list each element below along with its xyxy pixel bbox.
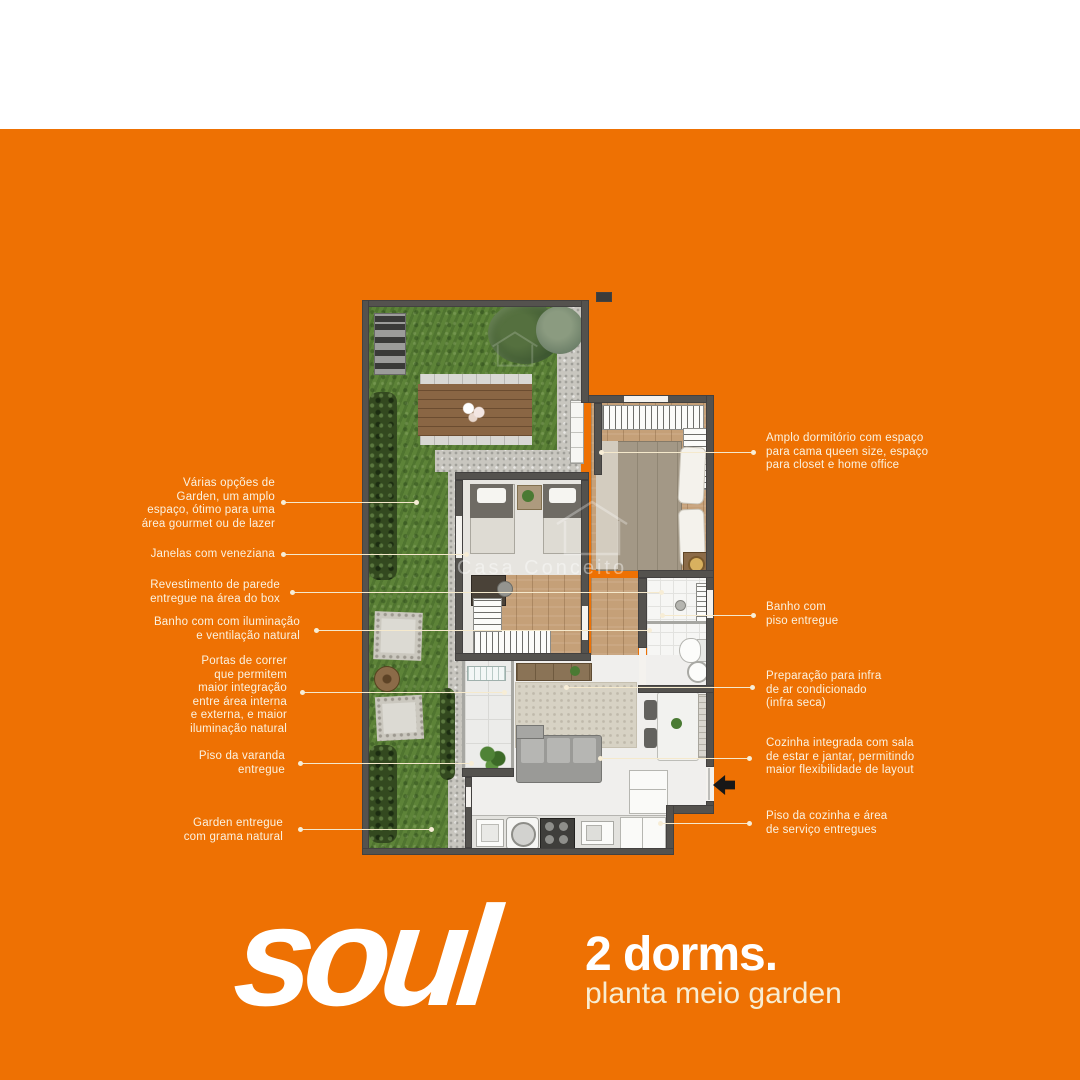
tree-light — [536, 306, 584, 354]
wall-bedroom2-bottom — [455, 653, 591, 661]
hall-floor — [591, 578, 638, 655]
wall-right-upper — [706, 395, 714, 767]
chimney-block — [596, 292, 612, 302]
logo-headline: 2 dorms. — [585, 931, 777, 979]
entrance-door-leaf — [708, 768, 710, 800]
leader-line — [283, 554, 467, 555]
wall-left — [362, 300, 369, 855]
varanda-garden-sliding-door — [462, 661, 465, 768]
dining-chair-1 — [644, 700, 657, 720]
label-janelas-veneziana: Janelas com veneziana — [35, 548, 275, 562]
sofa-cushion-3 — [573, 738, 596, 763]
leader-line — [300, 829, 432, 830]
service-door-gap — [466, 787, 471, 807]
wall-bathroom-left — [638, 578, 647, 648]
toilet-bowl — [679, 638, 701, 663]
bbq-grill — [374, 313, 406, 375]
garden-bench-top — [420, 374, 532, 384]
table-flowers — [458, 398, 488, 424]
bed-main-pillow-1 — [678, 446, 707, 504]
label-garden-grama: Garden entregue com grama natural — [43, 817, 283, 844]
wall-garden-top — [362, 300, 589, 307]
stove-burner-3 — [545, 835, 554, 844]
house-outline-icon — [556, 500, 628, 556]
nightstand-plant — [522, 490, 534, 502]
stone-deck-2 — [375, 695, 424, 741]
stove-burner-4 — [559, 835, 568, 844]
dining-chair-2 — [644, 728, 657, 748]
laundry-sink-basin — [481, 824, 499, 842]
wardrobe-bottom — [473, 630, 551, 655]
sofa-cushion-2 — [547, 738, 570, 763]
leader-line — [302, 692, 505, 693]
shrub-row-upper — [369, 392, 397, 580]
bed2-a-pillow — [477, 488, 506, 503]
garden-bench-bottom — [420, 436, 532, 445]
label-portas-de-correr: Portas de correr que permitem maior inte… — [47, 655, 287, 737]
leader-line — [660, 823, 750, 824]
washer-drum — [511, 822, 536, 847]
leader-line — [283, 502, 417, 503]
shower-drain — [675, 600, 686, 611]
leader-line — [316, 630, 650, 631]
label-revestimento-box: Revestimento de parede entregue na área … — [40, 579, 280, 606]
bathroom-window-gap — [707, 590, 713, 618]
house-outline-icon-small — [492, 330, 538, 368]
stone-deck-1 — [373, 611, 423, 661]
bedroom-garden-window — [570, 400, 584, 464]
poster-canvas: Casa Conceito Várias opções de Garden, u… — [0, 0, 1080, 1080]
logo-subline: planta meio garden — [585, 979, 842, 1009]
label-piso-cozinha: Piso da cozinha e área de serviço entreg… — [766, 810, 1006, 837]
gravel-path-band — [435, 450, 581, 472]
wall-varanda-bottom — [462, 768, 514, 777]
label-piso-varanda: Piso da varanda entregue — [45, 750, 285, 777]
label-garden-options: Várias opções de Garden, um amplo espaço… — [35, 477, 275, 531]
leader-line — [601, 452, 754, 453]
bedroom2-varanda-window — [467, 666, 506, 681]
leader-line — [662, 615, 754, 616]
dining-plant — [671, 718, 682, 729]
desk-chair — [497, 581, 513, 597]
fridge — [629, 770, 668, 814]
sofa-cushion-1 — [521, 738, 544, 763]
leader-line — [600, 758, 750, 759]
label-infra-ar: Preparação para infra de ar condicionado… — [766, 670, 1006, 711]
leader-line — [300, 763, 472, 764]
brand-logo: soul — [229, 886, 496, 1028]
bedroom2-door-gap — [582, 606, 588, 640]
kitchen-sink-basin — [586, 825, 602, 841]
label-banho-iluminacao: Banho com com iluminação e ventilação na… — [60, 616, 300, 643]
wall-bedroom2-top — [455, 472, 589, 480]
tv-rack — [516, 663, 592, 681]
bedroom2-window-gap — [456, 516, 462, 558]
label-banho-piso: Banho com piso entregue — [766, 601, 1006, 628]
wall-bedroom-left — [594, 403, 602, 475]
shrub-row-mid — [440, 688, 455, 780]
wardrobe-side — [473, 598, 502, 632]
bedroom-top-window-gap — [624, 396, 668, 402]
wall-garden-right — [581, 300, 589, 403]
varanda-living-sliding-door — [511, 661, 514, 768]
fridge-divider — [629, 789, 666, 790]
stove-burner-2 — [559, 822, 568, 831]
label-amplo-dormitorio: Amplo dormitório com espaço para cama qu… — [766, 432, 1006, 473]
parasol-table — [374, 666, 400, 692]
label-cozinha-integrada: Cozinha integrada com sala de estar e ja… — [766, 737, 1006, 778]
watermark-text: Casa Conceito — [432, 557, 652, 580]
leader-line — [292, 592, 662, 593]
closet-top — [602, 405, 704, 430]
wall-bottom — [362, 848, 674, 855]
tv-rack-plant — [570, 666, 580, 676]
bathroom-door-gap — [639, 648, 646, 685]
stove-burner-1 — [545, 822, 554, 831]
shower-glass-divider — [647, 621, 706, 624]
leader-line — [566, 687, 753, 688]
sofa-chaise — [516, 725, 544, 739]
